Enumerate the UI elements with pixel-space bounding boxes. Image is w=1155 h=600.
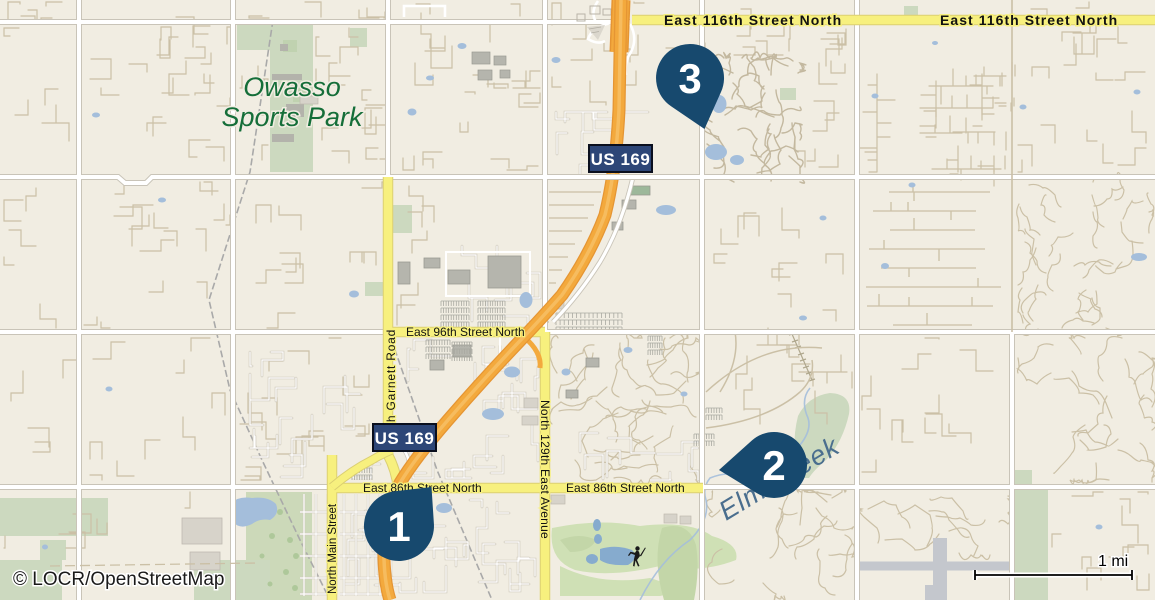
svg-text:1: 1 xyxy=(387,503,410,550)
svg-text:North Main Street: North Main Street xyxy=(327,503,339,594)
svg-text:East 96th Street North: East 96th Street North xyxy=(406,325,525,339)
svg-text:US 169: US 169 xyxy=(591,150,651,169)
svg-text:East 116th Street North: East 116th Street North xyxy=(940,12,1118,28)
svg-text:1 mi: 1 mi xyxy=(1098,553,1128,570)
svg-text:North 129th East Avenue: North 129th East Avenue xyxy=(538,400,552,539)
svg-text:2: 2 xyxy=(762,442,785,489)
svg-text:Sports Park: Sports Park xyxy=(221,102,364,132)
svg-text:© LOCR/OpenStreetMap: © LOCR/OpenStreetMap xyxy=(13,569,224,590)
svg-text:US 169: US 169 xyxy=(375,429,435,448)
svg-text:East 86th Street North: East 86th Street North xyxy=(566,481,685,495)
svg-text:East 116th Street North: East 116th Street North xyxy=(664,12,842,28)
svg-text:3: 3 xyxy=(678,55,701,102)
svg-text:Owasso: Owasso xyxy=(243,72,341,102)
